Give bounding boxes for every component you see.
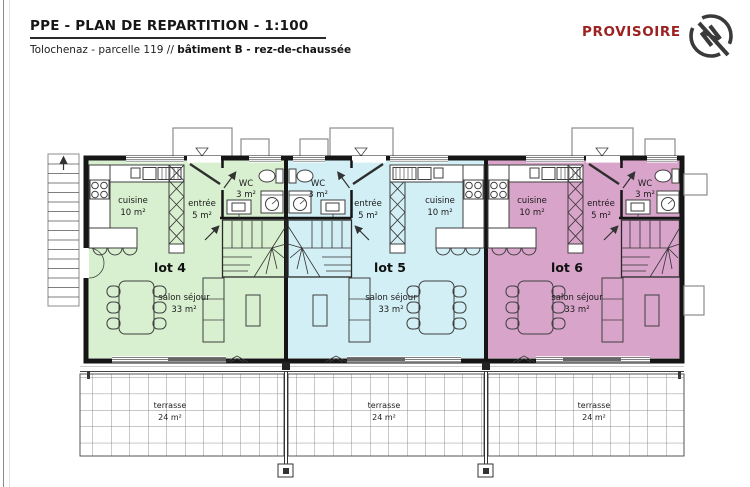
entrance-canopies [173, 128, 675, 157]
lot6-cuisine-area: 10 m² [519, 208, 544, 218]
lot5-terrasse-label: terrasse [368, 401, 401, 410]
lot6-salon-label: salon séjour [551, 292, 603, 303]
lot5-toilet-icon [289, 169, 313, 183]
lot4-terrace [80, 374, 284, 456]
lot6-sink-unit [509, 165, 583, 182]
lot4-entree-area: 5 m² [192, 211, 212, 221]
lot6-salon-area: 33 m² [564, 305, 589, 315]
lot6-cuisine-label: cuisine [517, 196, 547, 206]
lot4-wc-area: 3 m² [236, 190, 256, 200]
lot6-toilet-icon [655, 169, 679, 183]
lot6-stove-icon [489, 180, 508, 199]
lot5-wc-label: WC [311, 179, 325, 189]
floor-plan-drawing: cuisine 10 m² entrée 5 m² WC 3 m² lot 4 … [0, 0, 750, 487]
lot4-wc-label: WC [239, 179, 253, 189]
lot6-wc-label: WC [638, 179, 652, 189]
lot4-terrasse-label: terrasse [154, 401, 187, 410]
party-wall-lot5-lot6 [484, 158, 488, 361]
terraces: terrasse 24 m² terrasse 24 m² terrasse 2… [80, 362, 684, 477]
lot5-cuisine-area: 10 m² [427, 208, 452, 218]
lot5-salon-label: salon séjour [365, 292, 417, 303]
lot5-stove-icon [464, 180, 483, 199]
lot5-entree-area: 5 m² [358, 211, 378, 221]
lot4-label: lot 4 [154, 260, 186, 275]
subtitle-location: Tolochenaz - parcelle 119 // [30, 44, 177, 56]
lot4-washing-machine-icon [261, 191, 283, 213]
subtitle-building: bâtiment B - rez-de-chaussée [177, 44, 351, 56]
lot5-label: lot 5 [374, 260, 406, 275]
lot5-sink-unit [390, 165, 463, 182]
floor-plan-sheet: cuisine 10 m² entrée 5 m² WC 3 m² lot 4 … [0, 0, 750, 487]
lot5-terrasse-area: 24 m² [372, 413, 396, 422]
lot4-sink-unit [110, 165, 184, 182]
lot6-terrasse-label: terrasse [578, 401, 611, 410]
lot6-wc-area: 3 m² [635, 190, 655, 200]
lot4-salon-area: 33 m² [171, 305, 196, 315]
north-compass-icon: N [686, 11, 736, 61]
page-title: PPE - PLAN DE REPARTITION - 1:100 [30, 18, 326, 39]
right-wall-elements [684, 174, 707, 315]
lot6-washing-machine-icon [657, 191, 679, 213]
lot6-entree-area: 5 m² [591, 211, 611, 221]
lot4-terrasse-area: 24 m² [158, 413, 182, 422]
facade-windows-north [126, 156, 677, 163]
lot6-terrasse-area: 24 m² [582, 413, 606, 422]
lot5-salon-area: 33 m² [378, 305, 403, 315]
lot4-cuisine-label: cuisine [118, 196, 148, 206]
lot4-entree-label: entrée [188, 198, 216, 209]
lot6-entree-label: entrée [587, 198, 615, 209]
title-block: PPE - PLAN DE REPARTITION - 1:100 Toloch… [30, 15, 351, 56]
lot5-cuisine-label: cuisine [425, 196, 455, 206]
page-subtitle: Tolochenaz - parcelle 119 // bâtiment B … [30, 44, 351, 56]
lot4-toilet-icon [259, 169, 283, 183]
status-label: PROVISOIRE [582, 24, 681, 40]
exterior-stair [48, 154, 79, 306]
status-stamp: PROVISOIRE [582, 20, 702, 42]
lot6-label: lot 6 [551, 260, 583, 275]
lot4-salon-label: salon séjour [158, 292, 210, 303]
lot5-entree-label: entrée [354, 198, 382, 209]
lot4-stove-icon [90, 180, 109, 199]
lot5-wc-area: 3 m² [308, 190, 328, 200]
lot4-cuisine-area: 10 m² [120, 208, 145, 218]
